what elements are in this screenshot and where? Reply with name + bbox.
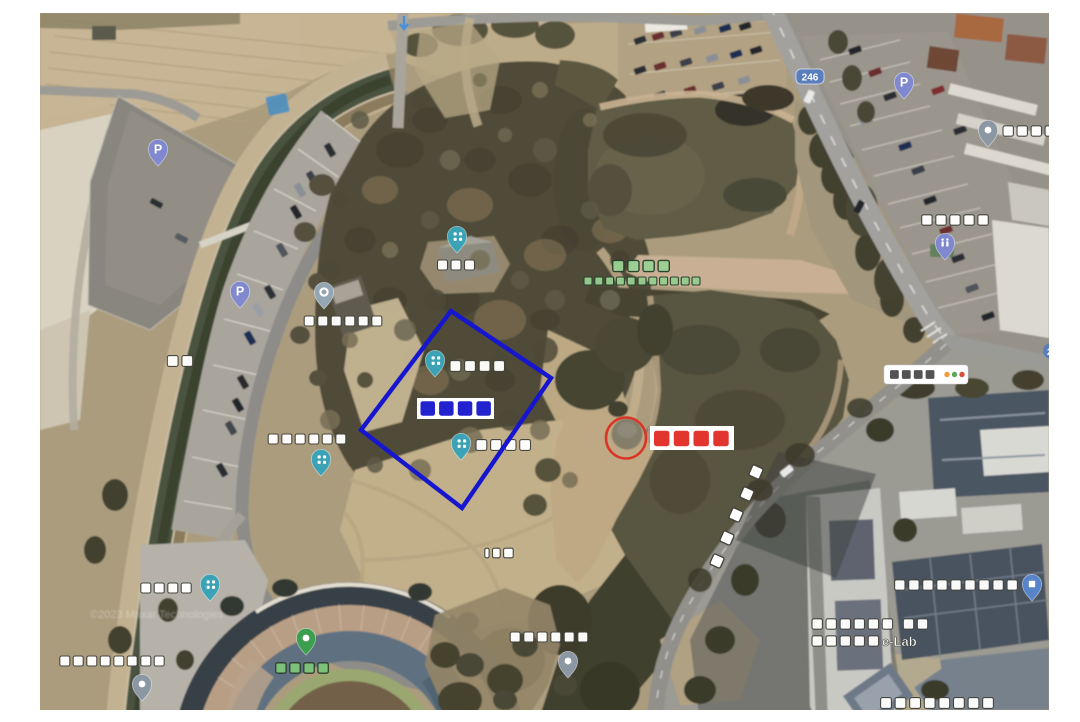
svg-text:©2023 Maxar Technologies: ©2023 Maxar Technologies	[90, 609, 224, 621]
svg-text:P: P	[900, 75, 908, 89]
svg-text:P: P	[236, 284, 244, 298]
svg-text:246: 246	[802, 73, 819, 84]
svg-text:P: P	[154, 142, 162, 156]
svg-text:e-Lab: e-Lab	[882, 634, 917, 649]
